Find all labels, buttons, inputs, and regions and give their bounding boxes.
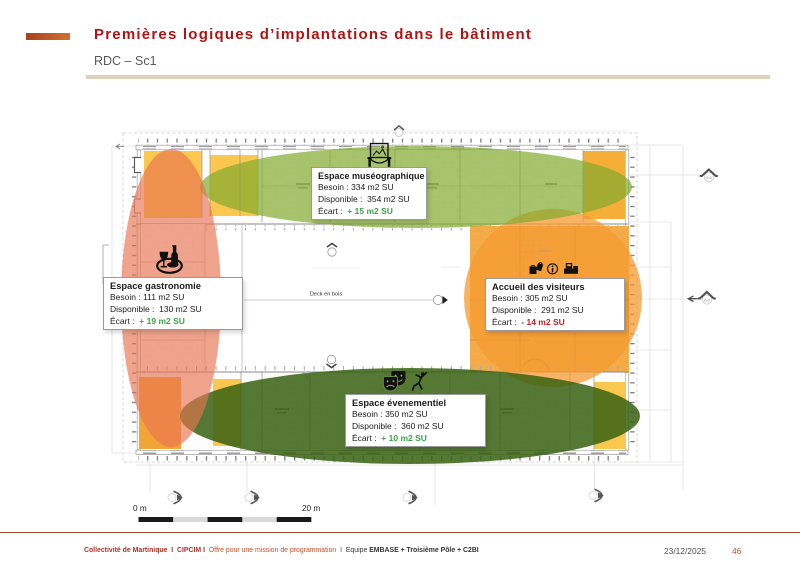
svg-text:20 m: 20 m (302, 504, 320, 513)
svg-text:0 m: 0 m (133, 504, 147, 513)
